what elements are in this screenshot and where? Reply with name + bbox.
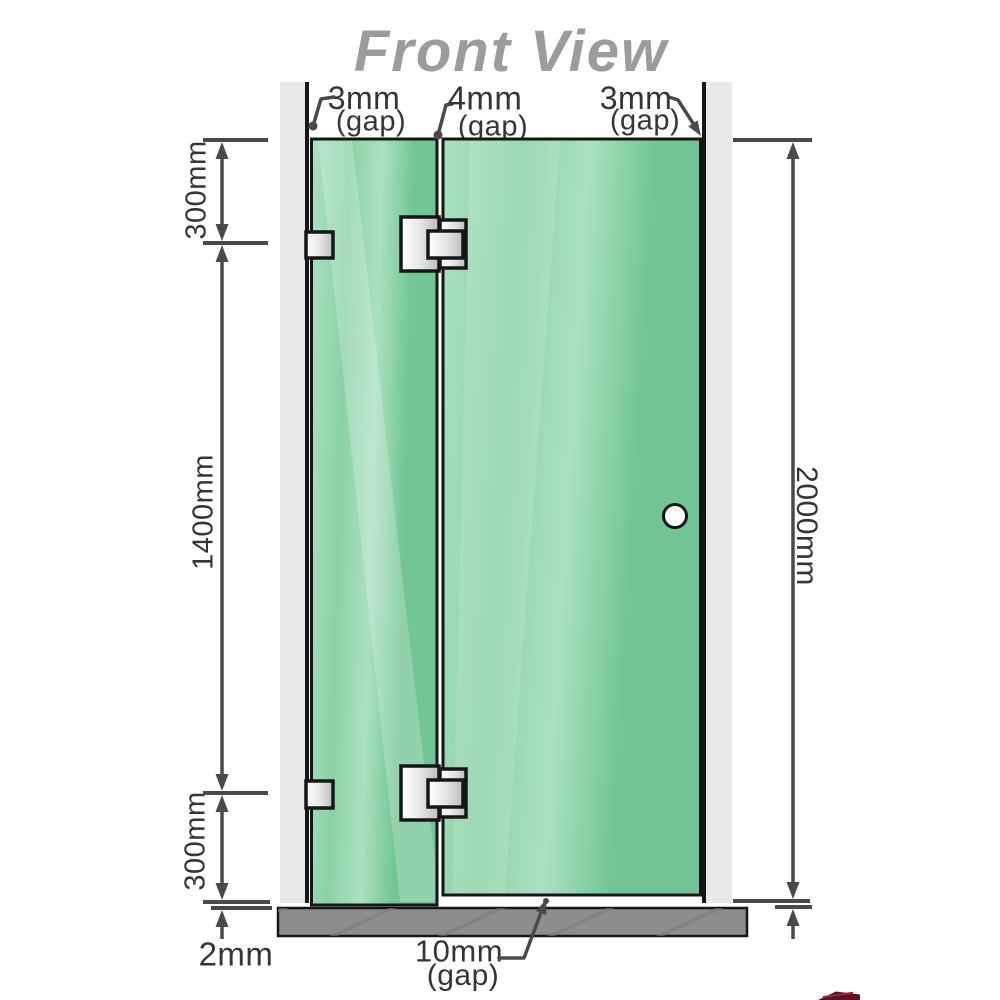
gap-label-wall-left-suffix: (gap): [336, 108, 406, 137]
front-view-diagram: Front View 300mm 1400mm 300mm 2mm 2000mm…: [0, 0, 1000, 1000]
gap-label-panel-joint-value: 4mm: [448, 82, 523, 115]
gap-label-wall-right-suffix: (gap): [610, 107, 680, 136]
